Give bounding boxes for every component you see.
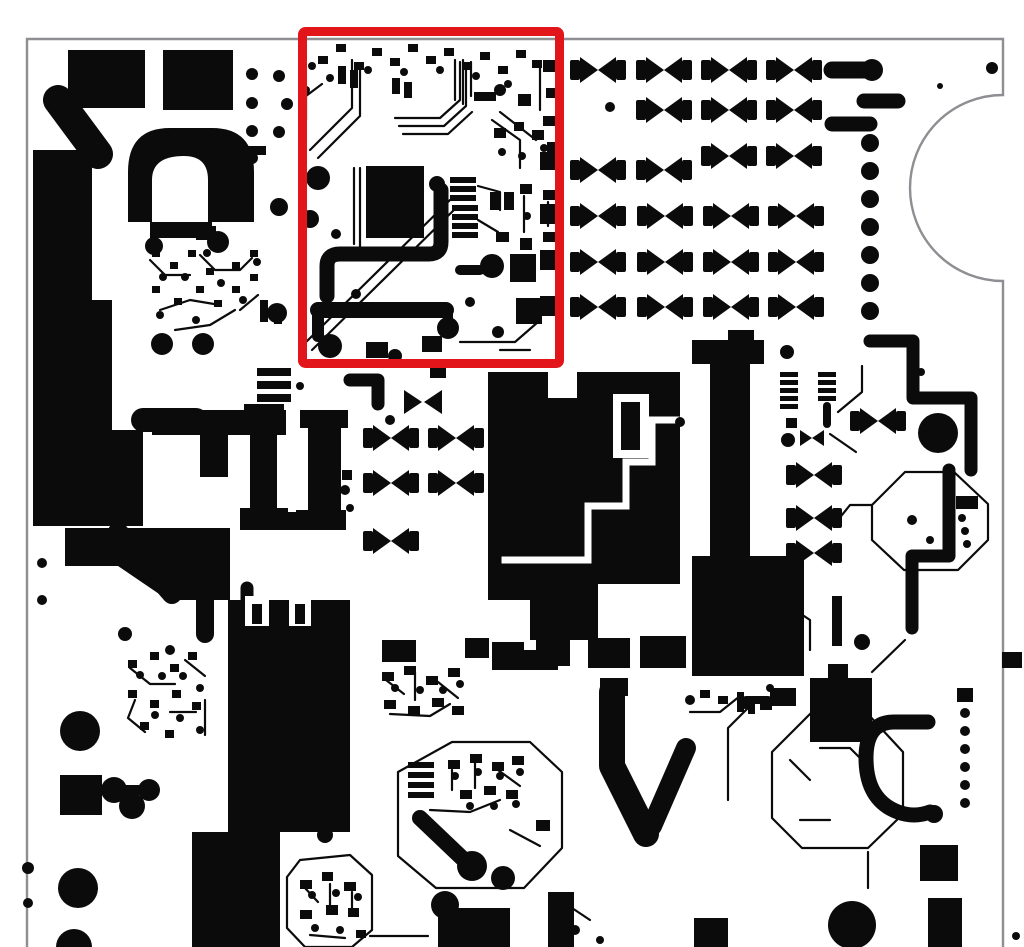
pcb-artwork xyxy=(0,0,1024,947)
ic-body xyxy=(366,166,424,238)
screenshot-stage xyxy=(0,0,1024,947)
